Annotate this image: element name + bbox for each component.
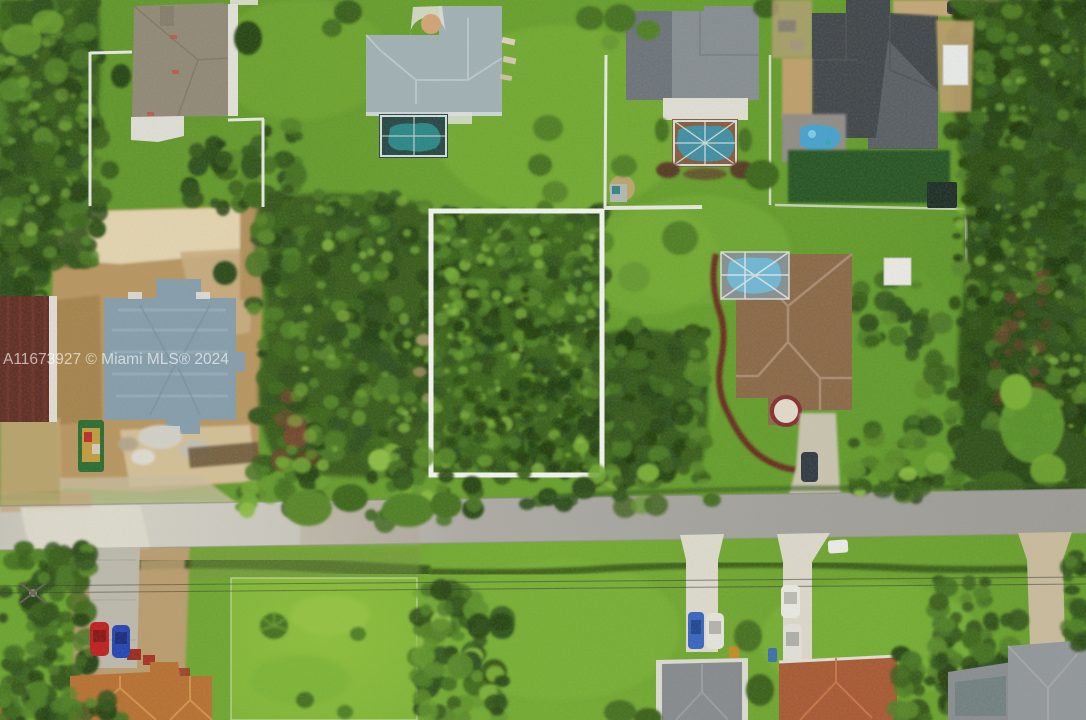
svg-text:A11673927 © Miami MLS® 2024: A11673927 © Miami MLS® 2024 <box>3 351 229 368</box>
